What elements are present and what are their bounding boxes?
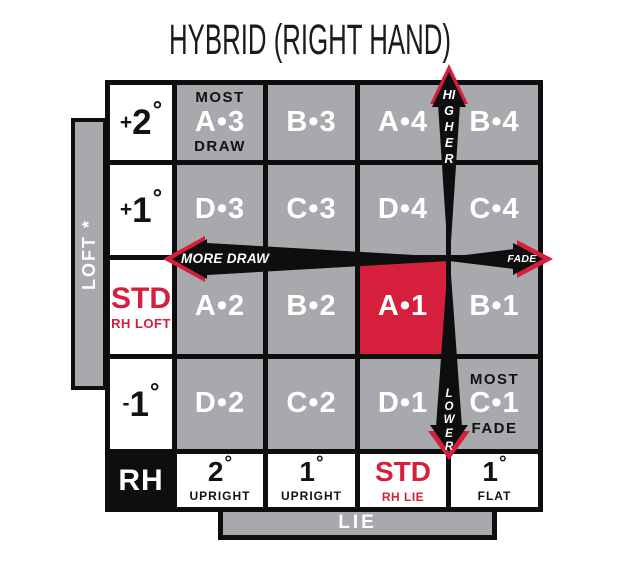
loft-sign: - [122,392,129,416]
std-loft-label: STD [111,283,171,315]
grid-cell-c2: C•2 [268,359,355,449]
grid-cell-a3: MOST A•3 DRAW [177,85,263,160]
degree-symbol: ° [153,103,163,120]
cell-code: A•4 [378,107,428,139]
cell-code: C•3 [286,194,336,226]
loft-axis-label: LOFT * [79,219,100,290]
degree-symbol: ° [499,457,507,470]
cell-code: D•4 [378,194,428,226]
loft-value: + 1 ° [120,193,162,228]
lie-value: 1 ° [299,458,323,486]
grid-cell-c3: C•3 [268,165,355,255]
cell-code: D•1 [378,388,428,420]
lie-cell-std: STD RH LIE [360,454,446,507]
lie-number: 1 [299,458,315,486]
lie-value: 1 ° [482,458,506,486]
loft-cell-minus1: - 1 ° [110,359,172,449]
cell-code: A•3 [195,107,245,139]
cell-code: B•2 [286,291,336,323]
loft-cell-plus2: + 2 ° [110,85,172,160]
hand-label: RH [118,464,163,498]
loft-number: 2 [132,105,151,140]
grid-cell-c4: C•4 [451,165,538,255]
cell-code: D•2 [195,388,245,420]
lie-sublabel: FLAT [478,489,512,503]
degree-symbol: ° [224,457,232,470]
loft-value: - 1 ° [122,387,159,422]
loft-sign: + [120,198,132,222]
std-lie-label: STD [375,457,431,486]
cell-code: D•3 [195,194,245,226]
loft-axis-bar: LOFT * [71,118,107,390]
cell-annotation-fade: FADE [471,420,517,437]
adjustment-grid: + 2 ° MOST A•3 DRAW B•3 A•4 B•4 + 1 ° [105,80,543,512]
grid-cell-b1: B•1 [451,260,538,354]
lie-sublabel: UPRIGHT [281,489,342,503]
cell-annotation-most: MOST [470,371,519,388]
grid-cell-d3: D•3 [177,165,263,255]
degree-symbol: ° [150,385,160,402]
lie-cell-1-flat: 1 ° FLAT [451,454,538,507]
hand-cell-rh: RH [110,454,172,507]
cell-code: B•3 [286,107,336,139]
grid-cell-a4: A•4 [360,85,446,160]
std-lie-sublabel: RH LIE [382,490,424,504]
cell-code: B•1 [469,291,519,323]
loft-value: + 2 ° [120,105,162,140]
grid-cell-b3: B•3 [268,85,355,160]
lie-number: 1 [482,458,498,486]
degree-symbol: ° [153,191,163,208]
loft-cell-plus1: + 1 ° [110,165,172,255]
cell-code: C•4 [469,194,519,226]
loft-sign: + [120,111,132,135]
grid-cell-b2: B•2 [268,260,355,354]
lie-cell-2-upright: 2 ° UPRIGHT [177,454,263,507]
lie-axis-label: LIE [338,512,377,534]
cell-code: C•1 [469,388,519,420]
lie-number: 2 [208,458,224,486]
cell-code: A•1 [378,291,428,323]
grid-cell-b4: B•4 [451,85,538,160]
cell-annotation-most: MOST [195,89,244,106]
degree-symbol: ° [316,457,324,470]
grid-cell-a1-highlighted: A•1 [360,260,446,354]
std-loft-sublabel: RH LOFT [111,316,171,331]
lie-sublabel: UPRIGHT [190,489,251,503]
grid-cell-a2: A•2 [177,260,263,354]
grid-cell-d2: D•2 [177,359,263,449]
grid-cell-c1: MOST C•1 FADE [451,359,538,449]
lie-value: 2 ° [208,458,232,486]
loft-number: 1 [129,387,148,422]
loft-number: 1 [132,193,151,228]
cell-annotation-draw: DRAW [194,138,246,155]
page-title: HYBRID (RIGHT HAND) [124,16,496,65]
grid-cell-d4: D•4 [360,165,446,255]
cell-code: B•4 [469,107,519,139]
grid-cell-d1: D•1 [360,359,446,449]
cell-code: C•2 [286,388,336,420]
lie-cell-1-upright: 1 ° UPRIGHT [268,454,355,507]
loft-cell-std: STD RH LOFT [110,260,172,354]
cell-code: A•2 [195,291,245,323]
hybrid-right-hand-fitting-chart: HYBRID (RIGHT HAND) LOFT * LIE + 2 ° MOS… [0,0,620,568]
